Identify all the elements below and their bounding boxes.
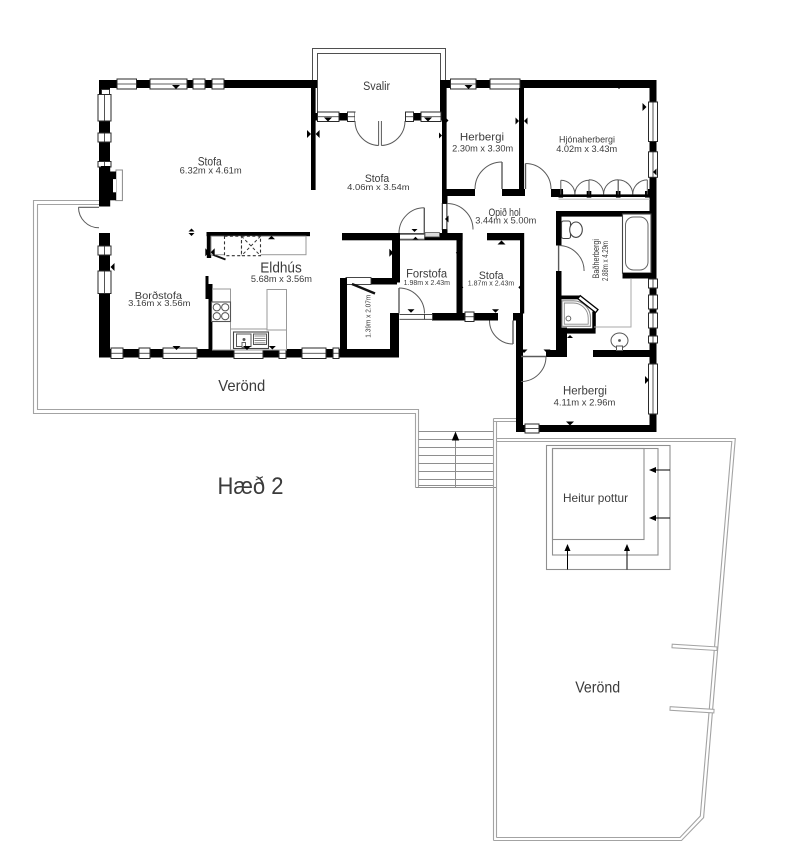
svg-text:Svalir: Svalir <box>363 81 390 93</box>
svg-text:Herbergi: Herbergi <box>460 132 504 144</box>
svg-text:2.30m x 3.30m: 2.30m x 3.30m <box>452 144 513 154</box>
svg-text:2.88m x 4.29m: 2.88m x 4.29m <box>600 241 610 281</box>
svg-text:3.44m x 5.00m: 3.44m x 5.00m <box>475 215 536 225</box>
svg-text:4.06m x 3.54m: 4.06m x 3.54m <box>347 182 409 192</box>
svg-text:4.11m x 2.96m: 4.11m x 2.96m <box>554 398 616 408</box>
svg-text:1.87m x 2.43m: 1.87m x 2.43m <box>468 278 514 287</box>
svg-text:5.68m x 3.56m: 5.68m x 3.56m <box>251 274 312 284</box>
svg-text:3.16m x 3.56m: 3.16m x 3.56m <box>128 299 191 308</box>
svg-text:1.98m x 2.43m: 1.98m x 2.43m <box>404 278 450 287</box>
svg-text:Verönd: Verönd <box>218 378 265 395</box>
svg-text:Herbergi: Herbergi <box>563 383 607 397</box>
svg-text:4.02m x 3.43m: 4.02m x 3.43m <box>556 144 617 154</box>
svg-text:6.32m x 4.61m: 6.32m x 4.61m <box>180 165 242 175</box>
svg-text:Hæð 2: Hæð 2 <box>218 473 284 500</box>
svg-text:Heitur pottur: Heitur pottur <box>563 491 628 505</box>
svg-text:1.39m x 2.07m: 1.39m x 2.07m <box>363 295 372 338</box>
svg-text:Verönd: Verönd <box>575 680 620 697</box>
svg-text:Hjónaherbergi: Hjónaherbergi <box>559 134 615 144</box>
